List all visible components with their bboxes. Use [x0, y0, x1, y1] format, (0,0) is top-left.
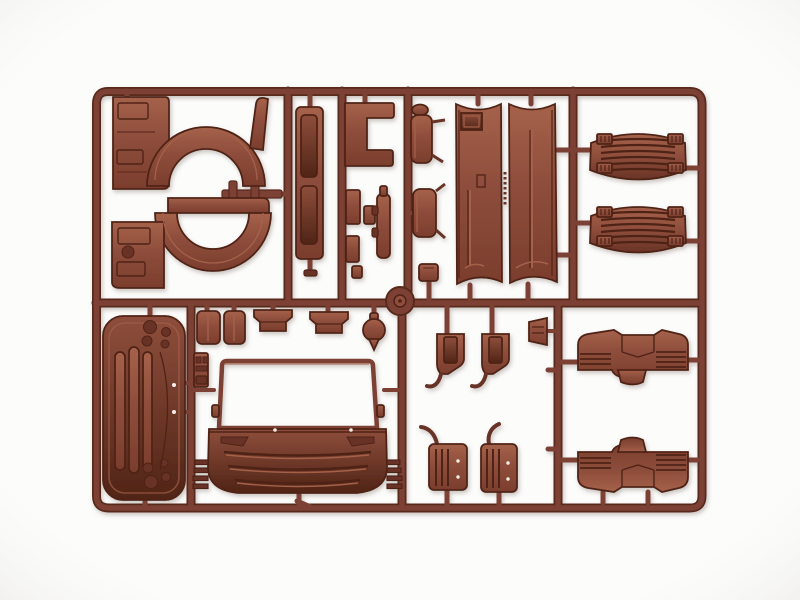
sprue-photo-canvas — [0, 0, 800, 600]
sprue-photo — [0, 0, 800, 600]
photo-vignette — [0, 0, 800, 600]
